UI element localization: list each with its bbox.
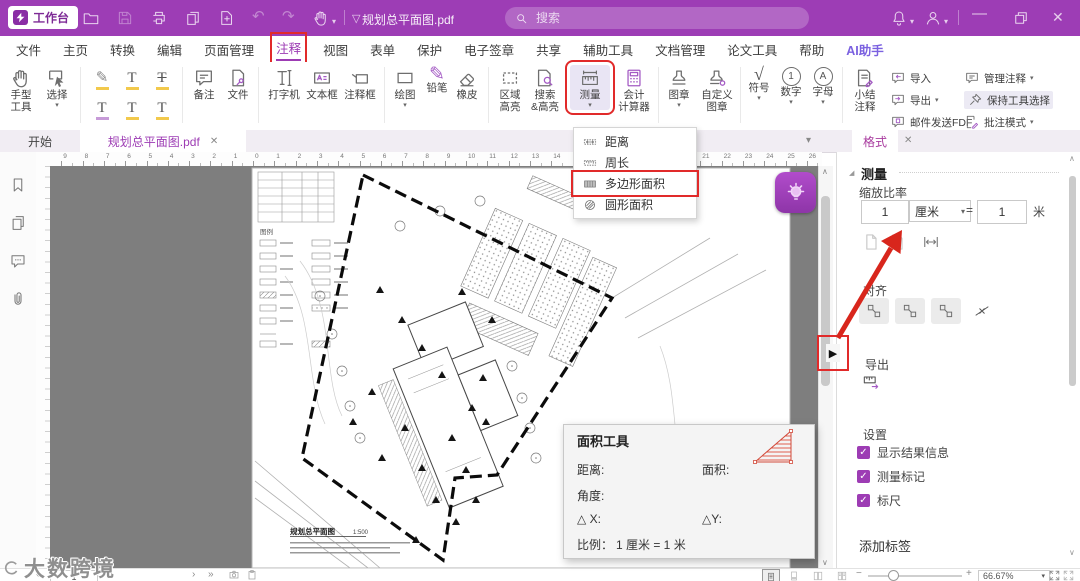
area-tool-area-label: 面积: (702, 461, 729, 478)
snap-intersection-icon[interactable] (973, 302, 991, 320)
ribbon-separator (384, 67, 385, 123)
search-highlight-icon (534, 67, 556, 89)
comment-mode-icon (964, 114, 980, 130)
snapshot-icon[interactable] (228, 569, 240, 581)
title-bar: 工作台 ↶ ↷ ▾ ▽ 规划总平面图.pdf ▾ ▾ — ✕ (0, 0, 1080, 36)
doc-flag-icon[interactable]: ▽ (352, 9, 360, 29)
panel-collapse-toggle[interactable]: ▶ (826, 344, 840, 362)
ribbon-tab-bar: 文件 主页 转换 编辑 页面管理 注释 视图 表单 保护 电子签章 共享 辅助工… (0, 36, 1080, 63)
print-icon[interactable] (150, 9, 168, 27)
snap-midpoint-icon (901, 302, 919, 320)
ribbon-separator (740, 67, 741, 123)
replace-text-button[interactable]: T (148, 96, 176, 124)
perimeter-icon (582, 155, 598, 171)
caret-down-icon: ▾ (588, 103, 592, 108)
ribbon-separator (488, 67, 489, 123)
calculator-icon (623, 67, 645, 89)
v-ruler (36, 166, 51, 568)
callout-icon (349, 67, 371, 89)
ribbon-separator (182, 67, 183, 123)
workspace-label: 工作台 (33, 9, 69, 26)
snap-midpoint-button[interactable] (895, 298, 925, 324)
caret-down-icon: ▾ (1030, 76, 1034, 81)
comment-mode-button[interactable]: 批注模式 ▾ (964, 114, 1034, 130)
snap-nearest-icon (937, 302, 955, 320)
fit-page-icon[interactable] (1062, 569, 1075, 581)
area-tool-dx-label: △ X: (577, 512, 601, 526)
equals-sign: = (966, 203, 973, 217)
tab-comment-active[interactable]: 注释 (276, 38, 301, 61)
avatar-caret-icon[interactable]: ▾ (944, 12, 948, 32)
close-window-button[interactable]: ✕ (1052, 7, 1064, 27)
caret-down-icon: ▾ (821, 100, 825, 105)
titlebar-separator (958, 10, 959, 25)
pencil-icon: ✎ (96, 71, 109, 86)
accounting-calculator-button[interactable]: 会计 计算器 (614, 65, 654, 116)
zoom-level-select[interactable]: 66.67% ▾ (978, 570, 1050, 581)
typewriter-icon (273, 67, 295, 89)
last-page-icon[interactable]: » (208, 569, 214, 581)
draw-shapes-button[interactable]: 绘图 ▾ (388, 65, 422, 110)
tab-convert[interactable]: 转换 (110, 40, 135, 59)
manage-comments-icon (964, 70, 980, 86)
undo-icon[interactable]: ↶ (252, 7, 265, 27)
export-icon (890, 92, 906, 108)
checkbox-checked-icon: ✓ (857, 446, 870, 459)
tab-file[interactable]: 文件 (16, 40, 41, 59)
caret-down-icon: ▾ (935, 98, 939, 103)
caret-down-icon: ▾ (961, 209, 965, 214)
underline-color-bar (126, 87, 139, 90)
two-page-view-button[interactable] (810, 569, 826, 581)
tab-esign[interactable]: 电子签章 (464, 40, 514, 59)
titlebar-separator (344, 10, 345, 25)
stamp-icon (668, 67, 690, 89)
svg-text:图例: 图例 (260, 227, 273, 236)
workspace-button[interactable]: 工作台 (8, 6, 78, 29)
scroll-down-icon[interactable]: ∨ (822, 558, 828, 567)
letter-t-strike-icon: T (157, 71, 166, 86)
email-fdf-button[interactable]: 邮件发送FDF (890, 114, 972, 130)
tab-page-management[interactable]: 页面管理 (204, 40, 254, 59)
titlebar-filename: 规划总平面图.pdf (362, 11, 454, 28)
search-box[interactable] (505, 7, 809, 29)
search-highlight-button[interactable]: 搜索 &高亮 (528, 65, 562, 116)
textbox-button[interactable]: 文本框 (302, 65, 342, 104)
letter-t-icon: T (157, 101, 166, 116)
two-page-continuous-view-button[interactable] (834, 569, 850, 581)
section-collapse-icon[interactable]: ◢ (849, 169, 854, 177)
show-result-info-checkbox[interactable]: ✓ 显示结果信息 (857, 444, 949, 461)
tab-help[interactable]: 帮助 (799, 40, 824, 59)
zoom-slider-track[interactable] (868, 575, 962, 577)
area-tool-panel[interactable]: 面积工具 距离: 面积: 角度: △ X: △Y: 比例： 1 厘米 = 1 米 (563, 424, 815, 559)
area-tool-dy-label: △Y: (702, 512, 722, 526)
scale-from-input[interactable] (861, 200, 909, 224)
document-tab-active[interactable]: 规划总平面图.pdf ✕ (80, 130, 246, 152)
single-page-view-button[interactable] (762, 569, 780, 581)
export-comments-button[interactable]: 导出 ▾ (890, 92, 939, 108)
caret-down-icon: ▾ (55, 103, 59, 108)
lightbulb-icon (784, 181, 808, 205)
hand-tool-button[interactable]: 手型 工具 (4, 65, 38, 116)
add-tag-label[interactable]: 添加标签 (859, 536, 911, 555)
tab-list-caret-icon[interactable]: ▾ (806, 135, 811, 146)
area-tool-title: 面积工具 (577, 431, 629, 450)
apply-to-all-pages-icon[interactable] (887, 232, 907, 252)
document-tab-strip: 开始 规划总平面图.pdf ✕ ▾ 格式 ✕ (0, 130, 1080, 153)
left-sidebar (0, 152, 37, 581)
measure-markup-checkbox[interactable]: ✓ 测量标记 (857, 468, 925, 485)
svg-text:规划总平面图: 规划总平面图 (290, 526, 335, 536)
insert-color-bar (126, 117, 139, 120)
insert-text-button[interactable]: T (118, 96, 146, 124)
caret-down-icon: ▾ (1041, 572, 1045, 580)
menu-item-polygon-area[interactable]: 多边形面积 (574, 173, 696, 194)
stamp-button[interactable]: 图章 ▾ (662, 65, 696, 110)
area-tool-angle-label: 角度: (577, 487, 604, 504)
scroll-up-icon[interactable]: ∧ (822, 167, 828, 176)
zoom-slider-knob[interactable] (888, 570, 899, 581)
pencil-tool-button[interactable]: ✎ 铅笔 (422, 65, 452, 97)
polygon-area-icon (582, 176, 598, 192)
replace-color-bar (156, 117, 169, 120)
copy-page-icon[interactable] (184, 9, 202, 27)
scale-to-unit[interactable]: 米 (1033, 203, 1045, 220)
underline-text-button[interactable]: T (118, 66, 146, 94)
measure-button-selected[interactable]: 测量 ▾ (570, 65, 610, 110)
continuous-view-button[interactable] (786, 569, 802, 581)
clipboard-icon[interactable] (246, 569, 258, 581)
area-tool-scale-label: 比例： (577, 536, 613, 553)
caret-down-icon: ▾ (757, 96, 761, 101)
open-file-icon[interactable] (82, 9, 100, 27)
attachments-icon[interactable] (9, 290, 27, 308)
panel-scrollbar-thumb[interactable] (1069, 176, 1076, 386)
panel-scroll-down-icon[interactable]: ∨ (1069, 548, 1075, 557)
letter-t-icon: T (97, 101, 106, 116)
eraser-tool-button[interactable]: 橡皮 (452, 65, 482, 104)
tab-accessibility[interactable]: 辅助工具 (583, 40, 633, 59)
section-divider (899, 172, 1059, 173)
pushpin-icon (967, 92, 983, 108)
application-window: 工作台 ↶ ↷ ▾ ▽ 规划总平面图.pdf ▾ ▾ — ✕ 文件 主页 转换 … (0, 0, 1080, 581)
pencil-icon: ✎ (429, 67, 445, 82)
callout-button[interactable]: 注释框 (340, 65, 380, 104)
textbox-icon (311, 67, 333, 89)
ribbon-separator (842, 67, 843, 123)
circled-letter-icon: A (814, 67, 833, 86)
search-input[interactable] (534, 10, 758, 26)
tab-share[interactable]: 共享 (536, 40, 561, 59)
restore-window-button[interactable] (1012, 9, 1030, 27)
measure-ruler-icon (579, 67, 601, 89)
squiggly-underline-button[interactable]: T (88, 96, 116, 124)
notification-bell-icon[interactable] (890, 9, 908, 27)
search-icon (515, 12, 528, 25)
menu-item-circle-area[interactable]: 圆形面积 (574, 194, 696, 215)
squiggly-color-bar (96, 117, 109, 120)
ribbon-separator (658, 67, 659, 123)
highlight-pencil-button[interactable]: ✎ (88, 66, 116, 94)
rectangle-icon (394, 67, 416, 89)
select-tool-button[interactable]: 选择 ▾ (40, 65, 74, 110)
fullscreen-icon[interactable] (1048, 569, 1061, 581)
strikethrough-text-button[interactable]: T (148, 66, 176, 94)
caret-down-icon: ▾ (1030, 120, 1034, 125)
tips-lightbulb-button[interactable] (775, 172, 816, 213)
avatar[interactable] (924, 9, 942, 27)
custom-stamp-button[interactable]: 自定义 图章 (696, 65, 738, 116)
scale-from-unit-select[interactable]: 厘米 ▾ (909, 200, 971, 222)
letter-button[interactable]: A 字母 ▾ (808, 65, 838, 107)
page-thumbnails-icon[interactable] (9, 214, 27, 232)
format-panel: ◢ 测量 缩放比率 厘米 ▾ = 米 对齐 导出 设置 ✓ 显示结果信息 (836, 152, 1080, 568)
bookmarks-icon[interactable] (9, 176, 27, 194)
snap-nearest-button[interactable] (931, 298, 961, 324)
format-panel-tab[interactable]: 格式 (852, 130, 898, 152)
comments-panel-icon[interactable] (9, 252, 27, 270)
settings-section-label: 设置 (863, 426, 887, 443)
save-icon[interactable] (116, 9, 134, 27)
caret-down-icon: ▾ (403, 103, 407, 108)
tab-home[interactable]: 主页 (63, 40, 88, 59)
select-cursor-icon (46, 67, 68, 89)
snap-endpoint-icon (865, 302, 883, 320)
keep-tool-selected-toggle[interactable]: 保持工具选择 (964, 91, 1053, 109)
file-pin-icon (227, 67, 249, 89)
app-logo-icon (13, 10, 28, 25)
eraser-icon (456, 67, 478, 89)
hand-mode-caret-icon[interactable]: ▾ (332, 12, 336, 32)
file-attachment-button[interactable]: 文件 (222, 65, 254, 104)
tab-form[interactable]: 表单 (370, 40, 395, 59)
export-measurement-icon[interactable] (861, 372, 881, 392)
import-comments-button[interactable]: 导入 (890, 70, 931, 86)
minimize-button[interactable]: — (972, 4, 987, 24)
checkbox-checked-icon: ✓ (857, 494, 870, 507)
checkbox-checked-icon: ✓ (857, 470, 870, 483)
tab-view[interactable]: 视图 (323, 40, 348, 59)
summary-note-icon (854, 67, 876, 89)
area-tool-distance-label: 距离: (577, 461, 604, 478)
highlight-color-bar (96, 87, 109, 90)
canvas-vertical-scrollbar[interactable]: ∧ ∨ (818, 166, 833, 568)
number-button[interactable]: 1 数字 ▾ (776, 65, 806, 107)
menu-item-perimeter[interactable]: 周长 (574, 152, 696, 173)
area-tool-scale-value: 1 厘米 = 1 米 (616, 536, 686, 553)
panel-scroll-up-icon[interactable]: ∧ (1069, 154, 1075, 163)
bell-caret-icon[interactable]: ▾ (910, 12, 914, 32)
ruler-checkbox[interactable]: ✓ 标尺 (857, 492, 901, 509)
tab-protect[interactable]: 保护 (417, 40, 442, 59)
svg-text:1:500: 1:500 (353, 530, 369, 536)
area-highlight-icon (499, 67, 521, 89)
distance-icon (582, 134, 598, 150)
play-icon: ▶ (829, 347, 837, 360)
circle-area-icon (582, 197, 598, 213)
ribbon-toolbar: 手型 工具 选择 ▾ ✎ T T T T T 备注 文件 打字机 (0, 62, 1080, 131)
caret-down-icon: ▾ (789, 100, 793, 105)
typewriter-button[interactable]: 打字机 (264, 65, 304, 104)
manage-comments-button[interactable]: 管理注释 ▾ (964, 70, 1034, 86)
calibrate-width-icon[interactable] (921, 232, 941, 252)
circled-number-icon: 1 (782, 67, 801, 86)
close-document-tab-icon[interactable]: ✕ (210, 136, 218, 147)
start-tab[interactable]: 开始 (0, 130, 81, 152)
apply-to-page-icon[interactable] (861, 232, 881, 252)
ribbon-separator (80, 67, 81, 123)
tab-edit[interactable]: 编辑 (157, 40, 182, 59)
ribbon-separator (258, 67, 259, 123)
new-page-icon[interactable] (218, 9, 236, 27)
menu-item-distance[interactable]: 距离 (574, 131, 696, 152)
text-markup-group: ✎ T T T T T (88, 66, 176, 124)
tab-doc-management[interactable]: 文档管理 (655, 40, 705, 59)
close-format-panel-icon[interactable]: ✕ (904, 135, 912, 146)
watermark-logo-icon (2, 558, 22, 578)
scale-to-input[interactable] (977, 200, 1027, 224)
mail-fdf-icon (890, 114, 906, 130)
zoom-out-button[interactable]: − (856, 568, 862, 580)
status-bar: ‹ ▾ › » − + 66.67% ▾ (0, 568, 1080, 581)
ruler-corner (36, 152, 51, 167)
tab-ai-assistant[interactable]: AI助手 (846, 40, 884, 59)
hand-mode-icon[interactable] (312, 9, 330, 27)
area-highlight-button[interactable]: 区域 高亮 (494, 65, 526, 116)
snap-endpoint-button[interactable] (859, 298, 889, 324)
watermark: 大数跨境 (2, 553, 116, 581)
symbol-button[interactable]: √ 符号 ▾ (744, 65, 774, 103)
letter-t-icon: T (127, 71, 136, 86)
redo-icon[interactable]: ↷ (282, 7, 295, 27)
import-icon (890, 70, 906, 86)
summary-comments-button[interactable]: 小结 注释 (846, 65, 884, 116)
letter-t-icon: T (127, 101, 136, 116)
caret-down-icon: ▾ (677, 103, 681, 108)
zoom-in-button[interactable]: + (966, 568, 972, 580)
note-bubble-icon (193, 67, 215, 89)
measure-section-header[interactable]: 测量 (861, 164, 887, 183)
align-section-label: 对齐 (863, 282, 887, 299)
radical-icon: √ (754, 67, 764, 82)
export-section-label: 导出 (865, 356, 889, 373)
hand-icon (10, 67, 32, 89)
custom-stamp-icon (706, 67, 728, 89)
note-comment-button[interactable]: 备注 (188, 65, 220, 104)
h-ruler: 9876543210123456789101112131415161718192… (50, 152, 822, 167)
measure-dropdown-menu: 距离 周长 多边形面积 圆形面积 (573, 127, 697, 219)
tab-paper-tools[interactable]: 论文工具 (727, 40, 777, 59)
scale-ratio-label: 缩放比率 (859, 184, 907, 201)
strike-color-bar (156, 87, 169, 90)
next-page-icon[interactable]: › (192, 569, 195, 581)
